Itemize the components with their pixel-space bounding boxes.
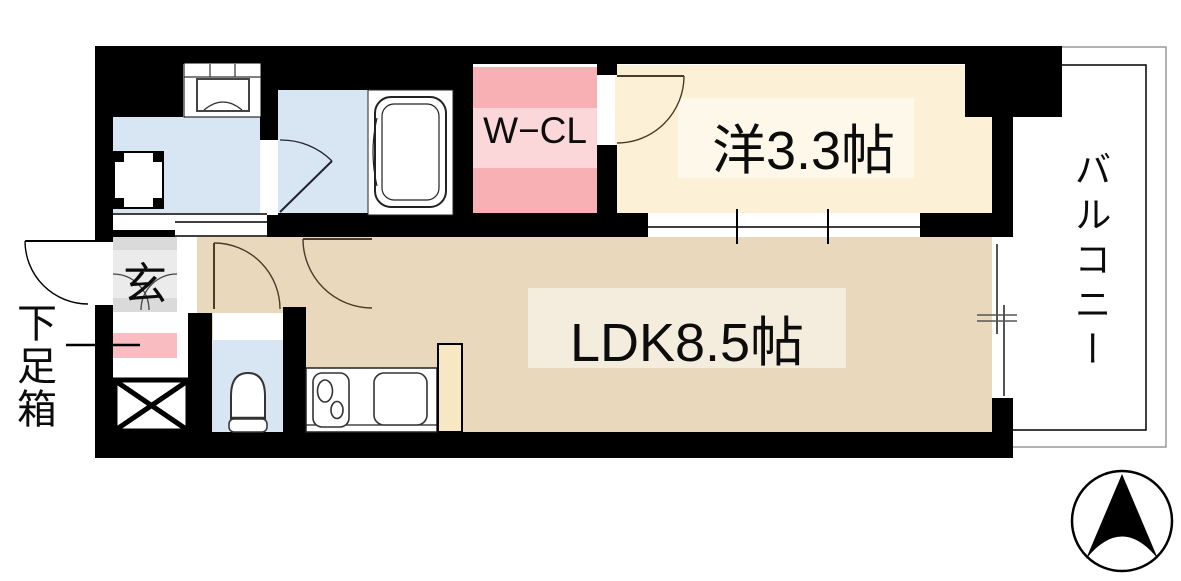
western-room-label: 洋3.3帖: [615, 106, 992, 185]
wall-segment: [278, 46, 473, 90]
wall-segment: [920, 213, 1013, 237]
floorplan-canvas: W−CL 洋3.3帖 LDK8.5帖 バルコニー 玄 下足箱: [0, 0, 1181, 581]
balcony-window: [993, 239, 1012, 398]
washbasin-corner: [153, 153, 162, 162]
balcony-label: バルコニー: [1062, 150, 1116, 375]
stove-burner: [331, 402, 343, 419]
ldk-label: LDK8.5帖: [528, 298, 846, 377]
wall-segment: [283, 307, 306, 432]
entrance-label: 玄: [113, 248, 177, 312]
washroom-sliding-door-panel: [175, 222, 267, 236]
kitchen-sink: [374, 373, 427, 425]
north-arrow-icon: [1072, 471, 1172, 571]
washbasin-corner: [115, 153, 124, 162]
toilet-door-opening: [213, 313, 283, 340]
wall-segment: [260, 46, 278, 140]
washing-machine-body: [197, 79, 249, 111]
wall-segment: [95, 46, 113, 242]
wall-segment: [992, 115, 1013, 213]
kitchen-partition-wall: [438, 344, 462, 432]
wall-segment: [113, 230, 175, 237]
wall-segment: [597, 46, 617, 75]
wall-segment: [267, 213, 648, 237]
entrance-door-arc: [25, 241, 88, 304]
stove: [313, 373, 349, 427]
wall-segment: [453, 46, 473, 237]
wall-segment: [188, 313, 212, 432]
shoe-box-label: 下足箱: [12, 302, 54, 431]
bathroom-door-opening: [260, 140, 278, 215]
toilet-base: [229, 419, 267, 432]
wall-segment: [992, 398, 1013, 434]
wall-segment: [95, 46, 1013, 64]
washbasin-corner: [115, 198, 124, 207]
bathtub-zone: [368, 90, 453, 215]
wall-segment: [95, 432, 1013, 458]
western-room-sliding-door: [648, 216, 920, 235]
washbasin-corner: [153, 198, 162, 207]
stove-burner: [318, 380, 333, 402]
floorplan-drawing: [0, 0, 1181, 581]
walk-in-closet-label: W−CL: [473, 110, 597, 152]
